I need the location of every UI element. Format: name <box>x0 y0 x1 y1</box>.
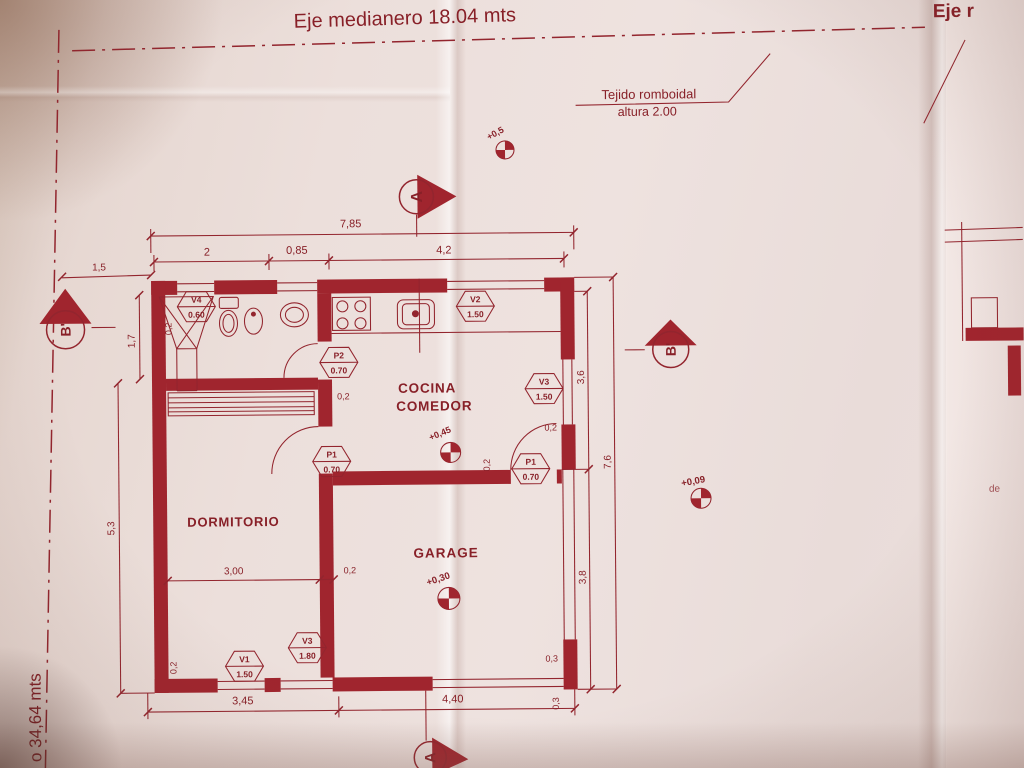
bidet <box>244 308 262 334</box>
svg-text:1.50: 1.50 <box>467 309 484 319</box>
dim-wall-d: 0,2 <box>482 459 492 472</box>
fence-note-line1: Tejido romboidal <box>601 86 696 102</box>
svg-text:1.80: 1.80 <box>299 651 316 661</box>
opening-tags: V4 0.60 V2 1.50 P2 0.70 V3 1.50 P1 0 <box>177 288 565 681</box>
bath-door-arc <box>284 344 318 378</box>
svg-text:V1: V1 <box>239 654 250 664</box>
level-marker-yard: +0,09 <box>680 474 711 508</box>
svg-text:1.50: 1.50 <box>236 669 253 679</box>
room-label-kitchen-1: COCINA <box>398 380 456 396</box>
dim-wall-f: 0,2 <box>168 662 178 675</box>
svg-text:B': B' <box>663 343 679 357</box>
dim-bedroom-height: 5,3 <box>106 521 117 535</box>
opening-tag-v2: V2 1.50 <box>456 291 494 321</box>
svg-text:+0,45: +0,45 <box>427 424 452 442</box>
level-marker-entry: +0,5 <box>485 124 514 159</box>
adjacent-sheet-fragment: Eje r de <box>923 0 1024 495</box>
window-top-lavatory <box>277 283 317 291</box>
room-label-garage: GARAGE <box>413 545 478 561</box>
boundary-label-top: Eje medianero 18.04 mts <box>293 4 516 33</box>
svg-text:+0,5: +0,5 <box>485 125 505 142</box>
dim-setback-left: 1,5 <box>92 262 106 273</box>
level-marker-garage: +0,30 <box>425 570 460 609</box>
window-bottom-bedroom-2 <box>281 680 333 688</box>
section-marker-b-right: B' <box>624 319 696 368</box>
svg-text:P1: P1 <box>525 457 536 467</box>
dim-wall-a: 0,2 <box>163 323 173 336</box>
svg-text:B': B' <box>57 323 73 337</box>
svg-text:V3: V3 <box>539 377 550 387</box>
fence-note-line2: altura 2.00 <box>618 104 677 119</box>
garage-door-opening <box>433 678 564 687</box>
dim-right-total: 7,6 <box>603 455 614 469</box>
section-marker-b-left: B' <box>39 288 116 349</box>
opening-tag-v1: V1 1.50 <box>225 651 263 681</box>
dim-top-a: 2 <box>204 247 210 259</box>
dim-right-lower: 3,8 <box>578 570 589 584</box>
right-sheet-small-text: de <box>989 484 1001 495</box>
boundary-label-left: o 34,64 mts <box>26 673 46 762</box>
kitchen-sink <box>397 300 434 329</box>
svg-text:V2: V2 <box>470 294 481 304</box>
svg-text:+0,30: +0,30 <box>425 570 451 588</box>
bathroom-fixtures <box>159 296 309 391</box>
svg-text:0.70: 0.70 <box>523 472 540 482</box>
opening-tag-p1-garage: P1 0.70 <box>512 454 550 484</box>
room-label-kitchen-2: COMEDOR <box>396 398 472 414</box>
boundary-label-right-sheet: Eje r <box>933 1 975 22</box>
bedroom-door-arc <box>271 427 318 474</box>
svg-text:A: A <box>409 190 426 202</box>
svg-text:P1: P1 <box>326 449 337 459</box>
closet <box>168 392 314 416</box>
svg-text:+0,09: +0,09 <box>680 474 706 489</box>
svg-text:P2: P2 <box>334 350 345 360</box>
shower <box>159 296 214 390</box>
property-line-top: Eje medianero 18.04 mts <box>72 1 925 51</box>
kitchen-counter <box>331 295 560 333</box>
dim-top-b: 0,85 <box>286 245 308 257</box>
window-top-bath <box>177 283 214 291</box>
svg-text:V3: V3 <box>302 636 313 646</box>
garage-open-side <box>563 469 575 639</box>
floor-plan-drawing: Eje medianero 18.04 mts o 34,64 mts Eje … <box>0 0 1024 768</box>
svg-text:0.70: 0.70 <box>331 365 348 375</box>
dim-right-upper: 3,6 <box>576 370 587 384</box>
dim-wall-b: 0,2 <box>344 565 357 575</box>
opening-tag-p2: P2 0.70 <box>320 347 358 377</box>
dim-pillar-b: 0,3 <box>551 697 561 710</box>
window-right-kitchen <box>563 359 573 424</box>
section-marker-a-bottom: A <box>414 737 468 768</box>
svg-text:0.70: 0.70 <box>323 464 340 474</box>
level-marker-kitchen: +0,45 <box>427 424 460 462</box>
svg-text:A: A <box>422 752 439 763</box>
dim-wall-c: 0,2 <box>337 391 350 401</box>
toilet <box>219 297 238 336</box>
dim-pillar-a: 0,3 <box>545 654 558 664</box>
svg-text:0.60: 0.60 <box>188 310 205 320</box>
dim-top-c: 4,2 <box>436 244 451 256</box>
washbasin <box>280 303 308 327</box>
dim-bath-height: 1,7 <box>127 334 138 348</box>
dim-top-total: 7,85 <box>340 218 362 230</box>
level-markers: +0,5 +0,45 +0,30 +0,09 <box>421 123 712 610</box>
stove <box>332 297 370 330</box>
dim-bottom-a: 3,45 <box>232 695 254 707</box>
window-bottom-bedroom-1 <box>218 681 265 689</box>
window-top-kitchen <box>447 281 544 290</box>
dim-bedroom-width: 3,00 <box>224 566 244 577</box>
house-walls <box>151 277 578 693</box>
room-label-bedroom: DORMITORIO <box>187 514 279 530</box>
dim-wall-e: 0,2 <box>544 423 557 433</box>
fence-note: Tejido romboidal altura 2.00 <box>575 54 771 120</box>
section-marker-a-top: A <box>399 174 456 218</box>
dim-bottom-b: 4,40 <box>442 693 464 705</box>
property-line-left: o 34,64 mts <box>20 30 65 768</box>
svg-text:1.50: 1.50 <box>536 392 553 402</box>
svg-text:V4: V4 <box>191 295 202 305</box>
opening-tag-v3-kitchen: V3 1.50 <box>525 373 563 403</box>
